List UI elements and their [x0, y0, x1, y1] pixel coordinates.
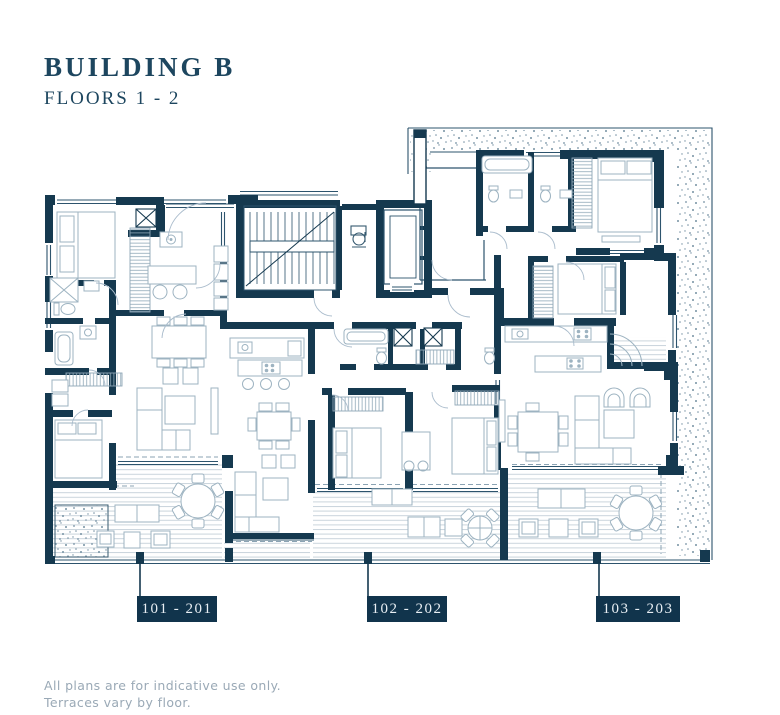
duct-cap — [414, 130, 426, 138]
unit-label-103-203: 103 - 203 — [596, 596, 680, 622]
unit-label-102-202: 102 - 202 — [367, 596, 447, 622]
title-block: BUILDING B FLOORS 1 - 2 — [44, 52, 235, 110]
unit-103-furniture — [482, 156, 652, 464]
stairwell — [244, 206, 336, 290]
disclaimer-line-1: All plans are for indicative use only. — [44, 678, 281, 695]
disclaimer-line-2: Terraces vary by floor. — [44, 695, 281, 712]
page-subtitle: FLOORS 1 - 2 — [44, 88, 235, 110]
page-title: BUILDING B — [44, 52, 235, 83]
accessible-wc-icon — [351, 226, 366, 247]
elevator — [384, 210, 422, 292]
disclaimer: All plans are for indicative use only. T… — [44, 678, 281, 712]
duct-shaft — [414, 130, 426, 204]
unit-label-101-201: 101 - 201 — [137, 596, 217, 622]
floorplan-page: BUILDING B FLOORS 1 - 2 101 - 201 102 - … — [0, 0, 780, 715]
